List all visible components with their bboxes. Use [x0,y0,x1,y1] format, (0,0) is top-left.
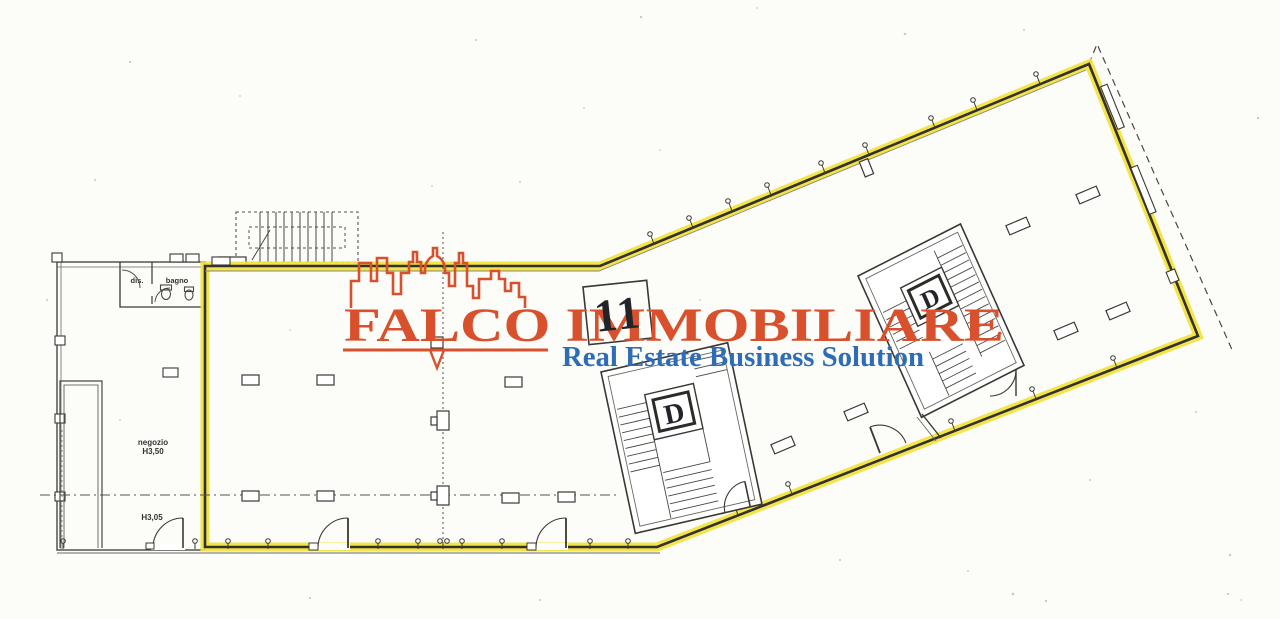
left-unit: dis. bagno negozio H3,50 H3,05 [52,253,660,553]
brand-tagline: Real Estate Business Solution [562,341,924,373]
room-label-negozio: negozio [138,438,168,447]
unit-number: 11 [592,286,645,342]
brand-pin-icon [430,350,444,368]
wall-pier [859,159,873,177]
room-label-bagno: bagno [166,276,189,285]
interior-columns [242,337,575,505]
external-stair-dashed [218,212,358,266]
scanned-floorplan-page: dis. bagno negozio H3,50 H3,05 [0,0,1280,619]
bathroom: dis. bagno [120,262,205,307]
floor-plan-svg: dis. bagno negozio H3,50 H3,05 [0,0,1280,619]
room-label-dis: dis. [131,276,144,285]
top-wall-windows [170,254,230,265]
room-label-negozio-height: H3,50 [142,447,164,456]
left-unit-entrance-door [146,518,185,550]
interior-partition [60,381,102,548]
room-label-ceiling-height: H3,05 [141,513,163,522]
site-boundary-dashed [1089,44,1233,352]
unit-number-badge: 11 [592,286,645,342]
toilet-fixtures [161,285,194,300]
